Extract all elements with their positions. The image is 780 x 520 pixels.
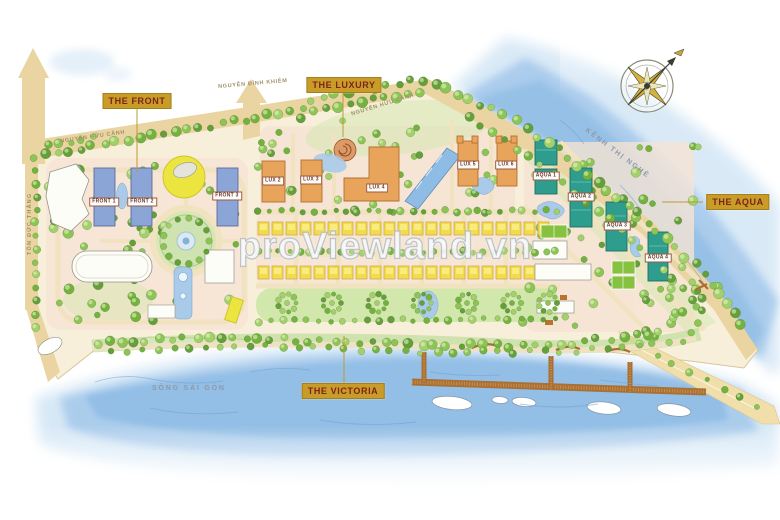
building-label-lux-6: LUX 6	[495, 161, 517, 170]
street-label-song-sai-gon: SÔNG SÀI GÒN	[152, 385, 226, 392]
building-label-front-2: FRONT 2	[127, 198, 157, 207]
watermark: proViewland.vn	[238, 226, 532, 269]
zone-label-the-aqua: THE AQUA	[706, 194, 769, 210]
building-label-lux-5: LUX 5	[457, 161, 479, 170]
zone-label-the-victoria: THE VICTORIA	[302, 383, 385, 399]
building-label-aqua-2: AQUA 2	[568, 193, 595, 202]
building-label-lux-2: LUX 2	[262, 177, 284, 186]
zone-label-the-front: THE FRONT	[103, 93, 172, 109]
building-label-front-3: FRONT 3	[212, 192, 242, 201]
master-plan-canvas: TÔN ĐỨC THẮNG NGUYỄN HỮU CẢNH NGUYỄN ĐÌN…	[0, 0, 780, 520]
street-label-ton-duc-thang: TÔN ĐỨC THẮNG	[27, 193, 33, 255]
building-label-lux-4: LUX 4	[366, 184, 388, 193]
building-label-aqua-4: AQUA 4	[645, 254, 672, 263]
building-label-front-1: FRONT 1	[89, 198, 119, 207]
building-label-lux-3: LUX 3	[300, 176, 322, 185]
building-label-aqua-1: AQUA 1	[533, 172, 560, 181]
building-label-aqua-3: AQUA 3	[604, 222, 631, 231]
zone-label-the-luxury: THE LUXURY	[306, 77, 381, 93]
